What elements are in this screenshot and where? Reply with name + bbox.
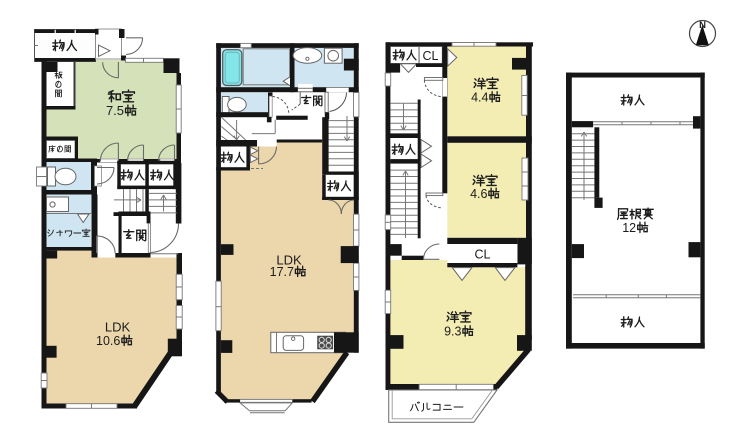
svg-text:17.7: 17.7 [270,265,294,279]
svg-text:9.3: 9.3 [444,325,461,339]
svg-text:10.6: 10.6 [96,334,120,348]
svg-text:CL: CL [423,49,439,63]
svg-text:12: 12 [622,221,636,235]
svg-text:LDK: LDK [105,320,131,335]
svg-text:4.4: 4.4 [471,91,488,105]
svg-text:7.5: 7.5 [106,103,124,118]
svg-text:4.6: 4.6 [470,187,487,201]
svg-text:CL: CL [475,248,491,262]
